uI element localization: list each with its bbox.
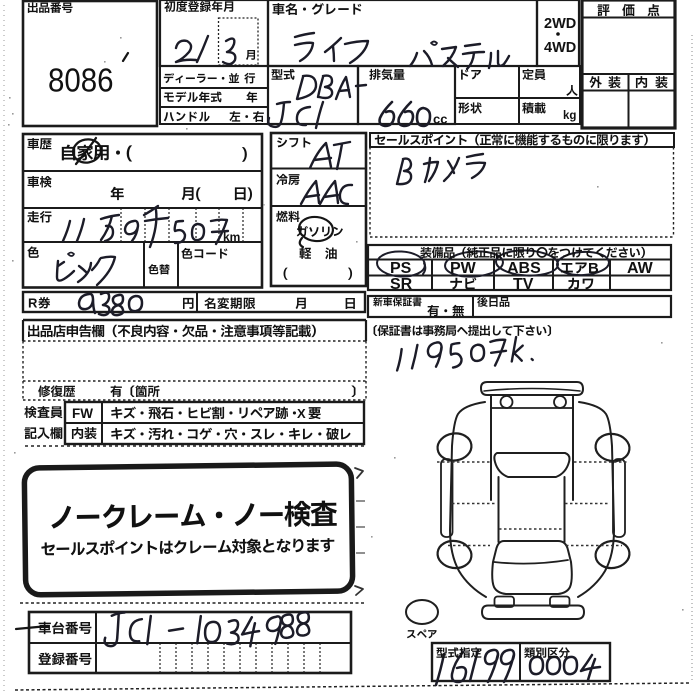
svg-text:4WD: 4WD [544, 40, 576, 56]
svg-text:PS: PS [390, 260, 412, 277]
svg-text:AW: AW [627, 260, 654, 277]
svg-text:PW: PW [450, 260, 477, 277]
svg-text:R: R [28, 296, 38, 311]
svg-text:SR: SR [390, 276, 413, 293]
svg-text:ABS: ABS [507, 260, 541, 277]
svg-text:km: km [223, 230, 240, 244]
svg-text:kg: kg [563, 110, 576, 122]
svg-text:cc: cc [433, 112, 447, 127]
svg-text:X: X [297, 406, 306, 421]
svg-text:FW: FW [72, 406, 93, 421]
svg-text:2WD: 2WD [544, 16, 576, 32]
svg-text:B: B [588, 260, 599, 277]
svg-text:8086: 8086 [48, 61, 114, 99]
svg-text:TV: TV [513, 276, 534, 293]
